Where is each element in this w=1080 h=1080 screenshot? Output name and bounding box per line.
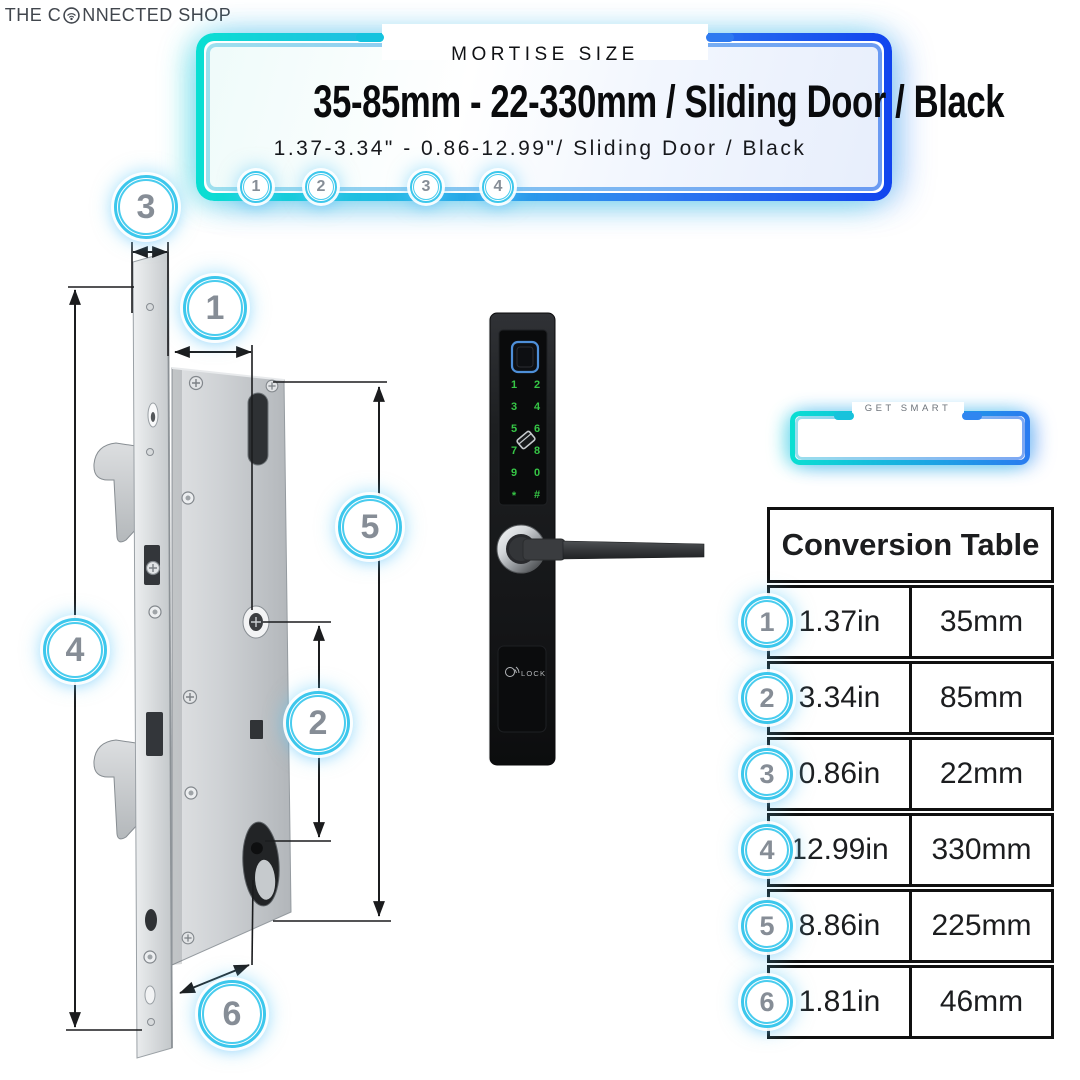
table-badge-2: 2 bbox=[742, 673, 792, 723]
table-row: 3.34in 85mm bbox=[767, 661, 1054, 735]
keypad-digit: 8 bbox=[534, 445, 540, 457]
keypad-digit: # bbox=[534, 489, 540, 501]
table-badge-1: 1 bbox=[742, 597, 792, 647]
table-row: 1.81in 46mm bbox=[767, 965, 1054, 1039]
millimeters-cell: 22mm bbox=[912, 740, 1051, 808]
dimension-badge-3: 3 bbox=[115, 176, 177, 238]
keypad-digit: * bbox=[512, 490, 517, 502]
lock-faceplate bbox=[133, 252, 172, 1058]
table-badge-6: 6 bbox=[742, 977, 792, 1027]
keypad-digit: 2 bbox=[534, 379, 540, 391]
millimeters-cell: 85mm bbox=[912, 664, 1051, 732]
brand-name-pre: THE C bbox=[5, 5, 62, 26]
brand-name-post: NNECTED SHOP bbox=[82, 5, 231, 26]
lock-panel-label: LOCK bbox=[521, 669, 546, 678]
keypad-digit: 3 bbox=[511, 401, 517, 413]
conversion-table-title: Conversion Table bbox=[767, 507, 1054, 583]
header-frame-cap-right bbox=[706, 33, 734, 42]
header-badge-1: 1 bbox=[241, 172, 271, 202]
table-row: 8.86in 225mm bbox=[767, 889, 1054, 963]
brand-tagline: GET SMART bbox=[828, 403, 988, 414]
conversion-table: Conversion Table 1.37in 35mm 3.34in 85mm… bbox=[767, 507, 1054, 1039]
product-subtitle: 1.37-3.34" - 0.86-12.99"/ Sliding Door /… bbox=[210, 137, 870, 161]
product-title: 35-85mm - 22-330mm / Sliding Door / Blac… bbox=[210, 78, 870, 126]
millimeters-cell: 225mm bbox=[912, 892, 1051, 960]
dimension-badge-2: 2 bbox=[287, 692, 349, 754]
brand-name: THE CNNECTED SHOP bbox=[0, 0, 236, 30]
keypad-digit: 9 bbox=[511, 467, 517, 479]
header-badge-4: 4 bbox=[483, 172, 513, 202]
table-row: 1.37in 35mm bbox=[767, 585, 1054, 659]
table-row: 0.86in 22mm bbox=[767, 737, 1054, 811]
dimension-badge-5: 5 bbox=[339, 496, 401, 558]
lock-case bbox=[172, 368, 291, 965]
millimeters-cell: 46mm bbox=[912, 968, 1051, 1036]
dimension-badge-1: 1 bbox=[184, 277, 246, 339]
millimeters-cell: 35mm bbox=[912, 588, 1051, 656]
dimension-badge-6: 6 bbox=[199, 981, 265, 1047]
product-infographic: MORTISE SIZE 35-85mm - 22-330mm / Slidin… bbox=[0, 0, 1080, 1080]
product-title-text: 35-85mm - 22-330mm / Sliding Door / Blac… bbox=[313, 78, 1004, 126]
lower-cover-panel bbox=[498, 646, 546, 732]
table-badge-4: 4 bbox=[742, 825, 792, 875]
keypad-digit: 0 bbox=[534, 467, 540, 479]
smart-lock-image: 1 2 3 4 5 6 7 8 9 0 * # LOCK bbox=[450, 300, 720, 780]
header-eyebrow: MORTISE SIZE bbox=[380, 44, 710, 66]
table-badge-5: 5 bbox=[742, 901, 792, 951]
dimension-badge-4: 4 bbox=[44, 619, 106, 681]
handle-lever bbox=[563, 541, 704, 559]
millimeters-cell: 330mm bbox=[912, 816, 1051, 884]
header-badge-2: 2 bbox=[306, 172, 336, 202]
wifi-o-icon bbox=[62, 6, 81, 25]
keypad-digit: 5 bbox=[511, 423, 517, 435]
keypad-digit: 4 bbox=[534, 401, 541, 413]
keypad-digit: 6 bbox=[534, 423, 540, 435]
table-badge-3: 3 bbox=[742, 749, 792, 799]
table-row: 12.99in 330mm bbox=[767, 813, 1054, 887]
header-frame-cap-left bbox=[356, 33, 384, 42]
handle-neck bbox=[523, 539, 565, 560]
keypad-digit: 1 bbox=[511, 379, 517, 391]
keypad-digit: 7 bbox=[511, 445, 517, 457]
header-badge-3: 3 bbox=[411, 172, 441, 202]
